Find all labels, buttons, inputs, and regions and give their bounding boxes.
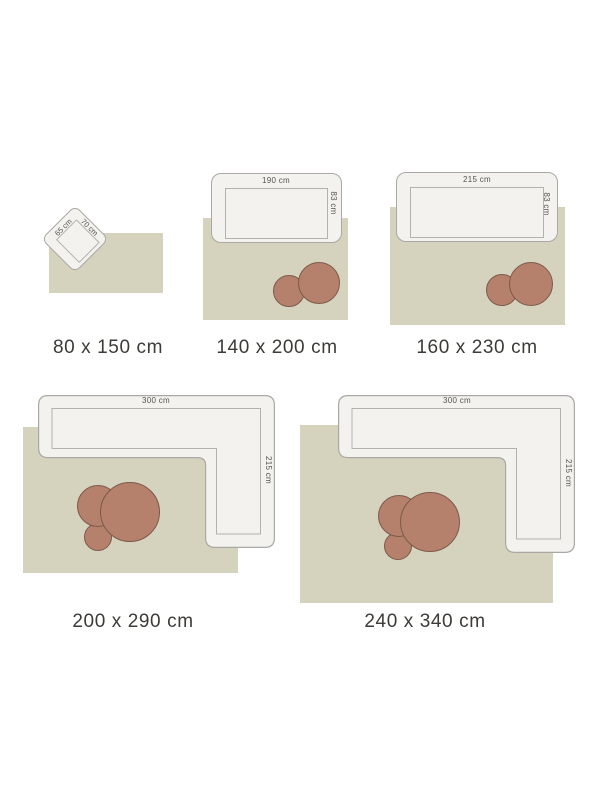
pouf-circle	[298, 262, 340, 304]
rug-size-label: 80 x 150 cm	[23, 337, 193, 359]
rug-size-label: 240 x 340 cm	[340, 611, 510, 633]
rug-size-label: 200 x 290 cm	[48, 611, 218, 633]
pouf-circle	[100, 482, 160, 542]
rug-size-label: 140 x 200 cm	[192, 337, 362, 359]
furniture-depth-label: 83 cm	[328, 183, 338, 223]
rug-size-guide-diagram: 65 cm 70 cm 80 x 150 cm 190 cm 83 cm 140…	[0, 0, 600, 800]
furniture-depth-label: 83 cm	[541, 184, 551, 224]
furniture-width-label: 215 cm	[437, 175, 517, 184]
furniture-depth-label: 215 cm	[263, 450, 273, 490]
sofa-seat-outline	[225, 188, 328, 239]
furniture-width-label: 300 cm	[116, 396, 196, 405]
pouf-circle	[400, 492, 460, 552]
rug-size-label: 160 x 230 cm	[392, 337, 562, 359]
furniture-depth-label: 215 cm	[563, 453, 573, 493]
pouf-circle	[509, 262, 553, 306]
furniture-width-label: 300 cm	[417, 396, 497, 405]
furniture-width-label: 190 cm	[236, 176, 316, 185]
sofa-seat-outline	[410, 187, 544, 238]
